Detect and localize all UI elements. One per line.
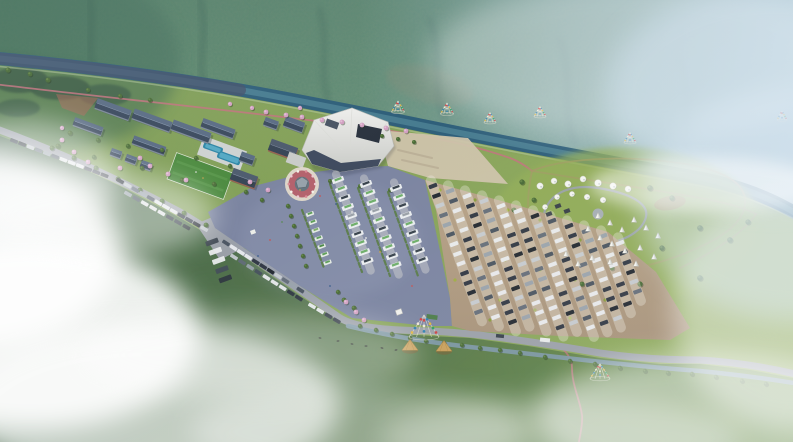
scene-canvas (0, 0, 793, 442)
aerial-rendering (0, 0, 793, 442)
color-grade (0, 0, 793, 442)
